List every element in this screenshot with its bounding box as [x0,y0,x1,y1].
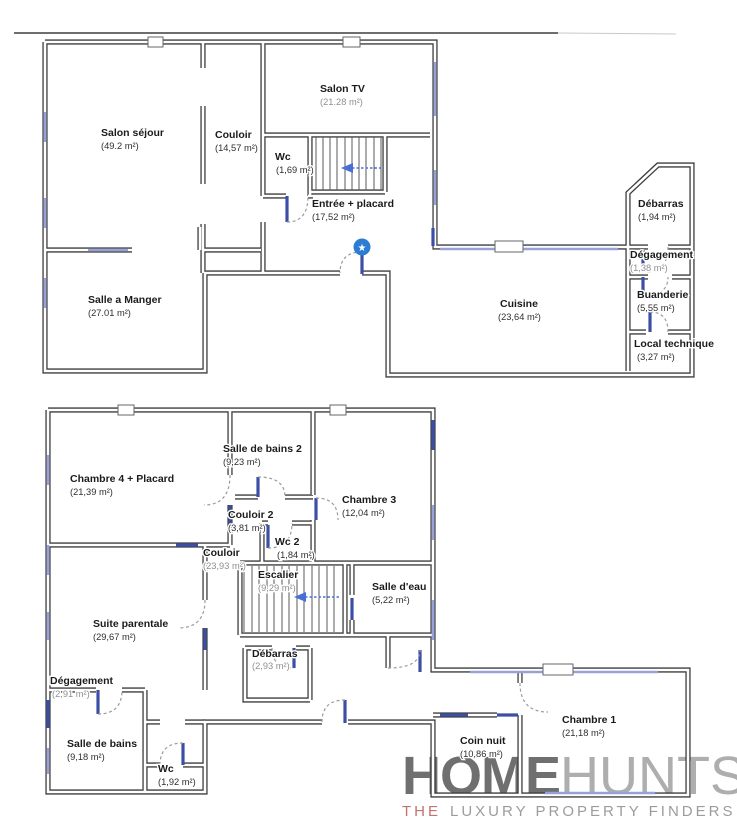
room-label-chambre1: Chambre 1 [562,714,616,726]
room-label-chambre3: Chambre 3 [342,494,396,506]
room-area-degagement: (1,38 m²) [630,263,668,273]
room-area-debarras-2f: (2,93 m²) [252,661,290,671]
room-area-escalier: (9,29 m²) [258,583,296,593]
scan-artifact-line-faint [558,33,676,34]
floor1-windows [45,37,618,308]
room-label-degagement-2f: Dégagement [50,675,114,687]
room-label-buanderie: Buanderie [637,289,689,301]
room-area-couloir: (14,57 m²) [215,143,258,153]
room-area-couloir-2f: (23,93 m²) [203,561,246,571]
room-label-wc-2f: Wc [158,763,174,775]
room-area-couloir2: (3,81 m²) [228,523,266,533]
room-area-chambre4: (21,39 m²) [70,487,113,497]
room-label-cuisine: Cuisine [500,298,538,310]
room-label-salon-tv: Salon TV [320,83,365,95]
room-label-salle-a-manger: Salle a Manger [88,294,162,306]
room-area-suite-parentale: (29,67 m²) [93,632,136,642]
stair-arrow-head-icon-2 [294,592,306,602]
floor2-labels: Chambre 4 + Placard (21,39 m²) Salle de … [50,443,616,787]
room-label-couloir: Couloir [215,129,252,141]
room-area-coin-nuit: (10,86 m²) [460,749,503,759]
room-area-salon-tv: (21.28 m²) [320,97,363,107]
room-area-entree-placard: (17,52 m²) [312,212,355,222]
room-area-salon-sejour: (49.2 m²) [101,141,139,151]
room-area-chambre3: (12,04 m²) [342,508,385,518]
floorplan-svg: ★ Salon séjour (49.2 m²) Couloir (14,57 … [0,0,737,837]
room-area-cuisine: (23,64 m²) [498,312,541,322]
room-label-salle-de-bains: Salle de bains [67,738,137,750]
room-label-salle-de-bains-2: Salle de bains 2 [223,443,302,455]
room-area-wc-2f: (1,92 m²) [158,777,196,787]
room-label-entree-placard: Entrée + placard [312,198,394,210]
room-label-suite-parentale: Suite parentale [93,618,168,630]
room-area-wc: (1,69 m²) [276,165,314,175]
room-area-buanderie: (5,55 m²) [637,303,675,313]
room-label-escalier: Escalier [258,569,298,581]
stair-arrow-head-icon [341,163,353,173]
room-label-debarras: Débarras [638,198,684,210]
room-area-salle-de-bains: (9,18 m²) [67,752,105,762]
room-label-couloir-2f: Couloir [203,547,240,559]
room-label-couloir2: Couloir 2 [228,509,274,521]
room-label-salle-deau: Salle d'eau [372,581,426,593]
star-icon: ★ [358,243,367,254]
room-area-salle-de-bains-2: (9,23 m²) [223,457,261,467]
room-area-degagement-2f: (2,91 m²) [52,689,90,699]
room-area-debarras: (1,94 m²) [638,212,676,222]
room-label-degagement: Dégagement [630,249,694,261]
room-label-wc: Wc [275,151,291,163]
floor1-stairs [316,137,383,190]
room-area-salle-deau: (5,22 m²) [372,595,410,605]
room-area-wc2: (1,84 m²) [277,550,315,560]
room-label-local-technique: Local technique [634,338,714,350]
room-label-debarras-2f: Débarras [252,648,298,660]
floor1-labels: Salon séjour (49.2 m²) Couloir (14,57 m²… [88,83,714,362]
room-area-chambre1: (21,18 m²) [562,728,605,738]
room-area-salle-a-manger: (27.01 m²) [88,308,131,318]
entrance-star-marker: ★ [354,239,371,256]
room-label-chambre4: Chambre 4 + Placard [70,473,174,485]
room-label-wc2: Wc 2 [275,536,300,548]
floorplan-page: HOMEHUNTS THELUXURY PROPERTY FINDERS [0,0,737,837]
room-label-salon-sejour: Salon séjour [101,127,164,139]
room-area-local-technique: (3,27 m²) [637,352,675,362]
room-label-coin-nuit: Coin nuit [460,735,506,747]
